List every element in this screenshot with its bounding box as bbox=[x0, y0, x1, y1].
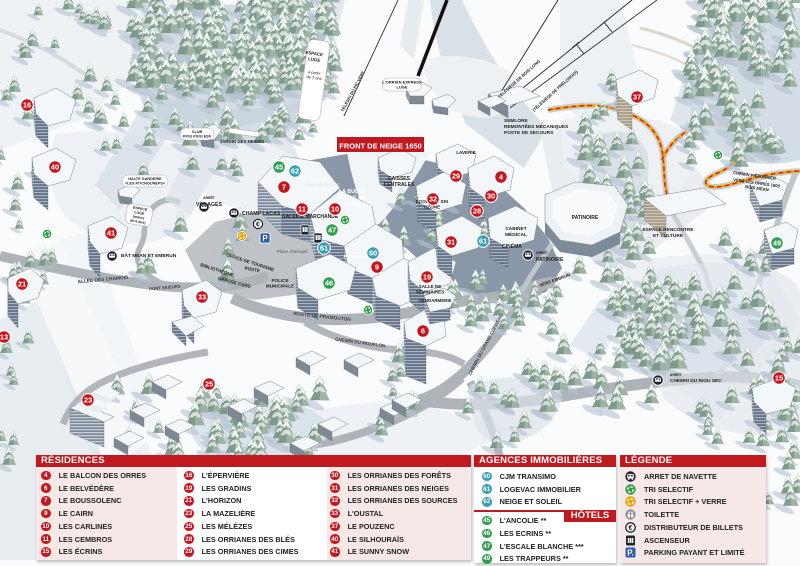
svg-text:ARRÊT: ARRÊT bbox=[203, 195, 216, 200]
svg-text:60: 60 bbox=[369, 249, 377, 258]
svg-text:VILLAGES: VILLAGES bbox=[196, 202, 222, 208]
svg-text:40: 40 bbox=[51, 163, 59, 172]
svg-text:19: 19 bbox=[423, 273, 431, 282]
svg-text:ÉCOLE DU: ÉCOLE DU bbox=[338, 194, 366, 202]
svg-text:21: 21 bbox=[18, 280, 26, 289]
svg-text:HALTE GARDERIE: HALTE GARDERIE bbox=[128, 177, 162, 181]
svg-text:POLICE: POLICE bbox=[271, 278, 288, 283]
svg-text:CHAMP LACAS: CHAMP LACAS bbox=[242, 211, 281, 217]
svg-text:P: P bbox=[262, 234, 268, 243]
svg-text:33: 33 bbox=[198, 293, 206, 302]
svg-text:61: 61 bbox=[320, 244, 328, 253]
svg-text:Place du festival: Place du festival bbox=[305, 182, 339, 187]
svg-text:ESPACE RENCONTRE: ESPACE RENCONTRE bbox=[642, 227, 694, 233]
svg-text:37: 37 bbox=[633, 93, 641, 102]
svg-text:SÉMINAIRES: SÉMINAIRES bbox=[416, 288, 445, 295]
svg-text:15: 15 bbox=[775, 374, 783, 383]
svg-text:29: 29 bbox=[452, 172, 460, 181]
svg-text:ARRÊT: ARRÊT bbox=[536, 250, 549, 255]
svg-text:CABINET: CABINET bbox=[505, 226, 526, 232]
svg-text:SALLE DE: SALLE DE bbox=[419, 284, 442, 289]
svg-text:9: 9 bbox=[375, 263, 379, 272]
svg-text:CHEMIN DU RIOU SEC: CHEMIN DU RIOU SEC bbox=[670, 378, 722, 384]
svg-text:7: 7 bbox=[282, 183, 286, 192]
svg-text:13: 13 bbox=[0, 333, 8, 342]
svg-text:CLUB: CLUB bbox=[192, 130, 203, 134]
svg-text:GALERIE MARCHANDE: GALERIE MARCHANDE bbox=[282, 214, 339, 220]
svg-text:Place d'accueil: Place d'accueil bbox=[277, 249, 308, 254]
svg-text:SEMLORE: SEMLORE bbox=[504, 118, 529, 124]
svg-text:23: 23 bbox=[84, 396, 92, 405]
svg-text:PATINOIRE: PATINOIRE bbox=[536, 257, 564, 263]
svg-text:31: 31 bbox=[447, 238, 455, 247]
svg-text:PIOU PIOU ESF: PIOU PIOU ESF bbox=[183, 135, 212, 139]
svg-text:61: 61 bbox=[479, 237, 487, 246]
svg-text:10: 10 bbox=[331, 205, 339, 214]
svg-text:49: 49 bbox=[773, 239, 781, 248]
svg-text:€: € bbox=[256, 222, 260, 229]
svg-text:PATINOIRE: PATINOIRE bbox=[572, 215, 599, 221]
svg-text:FRONT DE NEIGE 1650: FRONT DE NEIGE 1650 bbox=[339, 142, 422, 151]
svg-text:P.: P. bbox=[627, 549, 634, 558]
svg-text:LA BULLE: LA BULLE bbox=[339, 189, 366, 195]
svg-text:6: 6 bbox=[421, 327, 425, 336]
svg-text:16: 16 bbox=[23, 101, 31, 110]
svg-text:GENDARMERIE: GENDARMERIE bbox=[419, 298, 452, 303]
svg-text:ARRÊT: ARRÊT bbox=[670, 372, 683, 377]
svg-text:32: 32 bbox=[429, 195, 437, 204]
svg-text:11: 11 bbox=[298, 205, 306, 214]
svg-text:41: 41 bbox=[107, 229, 115, 238]
svg-text:62: 62 bbox=[291, 167, 299, 176]
svg-text:LUGE: LUGE bbox=[396, 84, 407, 89]
svg-text:30: 30 bbox=[487, 192, 495, 201]
svg-text:JARDIN DES NEIGES: JARDIN DES NEIGES bbox=[220, 139, 264, 144]
svg-text:46: 46 bbox=[325, 279, 333, 288]
svg-text:LAVERIE: LAVERIE bbox=[456, 150, 476, 155]
svg-text:MUNICIPALE: MUNICIPALE bbox=[266, 284, 294, 289]
svg-text:25: 25 bbox=[205, 380, 213, 389]
svg-text:47: 47 bbox=[328, 226, 336, 235]
svg-text:CENTRALES: CENTRALES bbox=[384, 182, 415, 188]
svg-text:CINÉMA: CINÉMA bbox=[502, 242, 522, 250]
svg-text:45: 45 bbox=[275, 163, 283, 172]
svg-text:28: 28 bbox=[473, 207, 481, 216]
svg-text:ET CULTURE: ET CULTURE bbox=[653, 233, 684, 239]
svg-text:POSTE DE SECOURS: POSTE DE SECOURS bbox=[504, 130, 554, 136]
svg-text:«LES PITCHOUNEPS»: «LES PITCHOUNEPS» bbox=[125, 182, 165, 186]
